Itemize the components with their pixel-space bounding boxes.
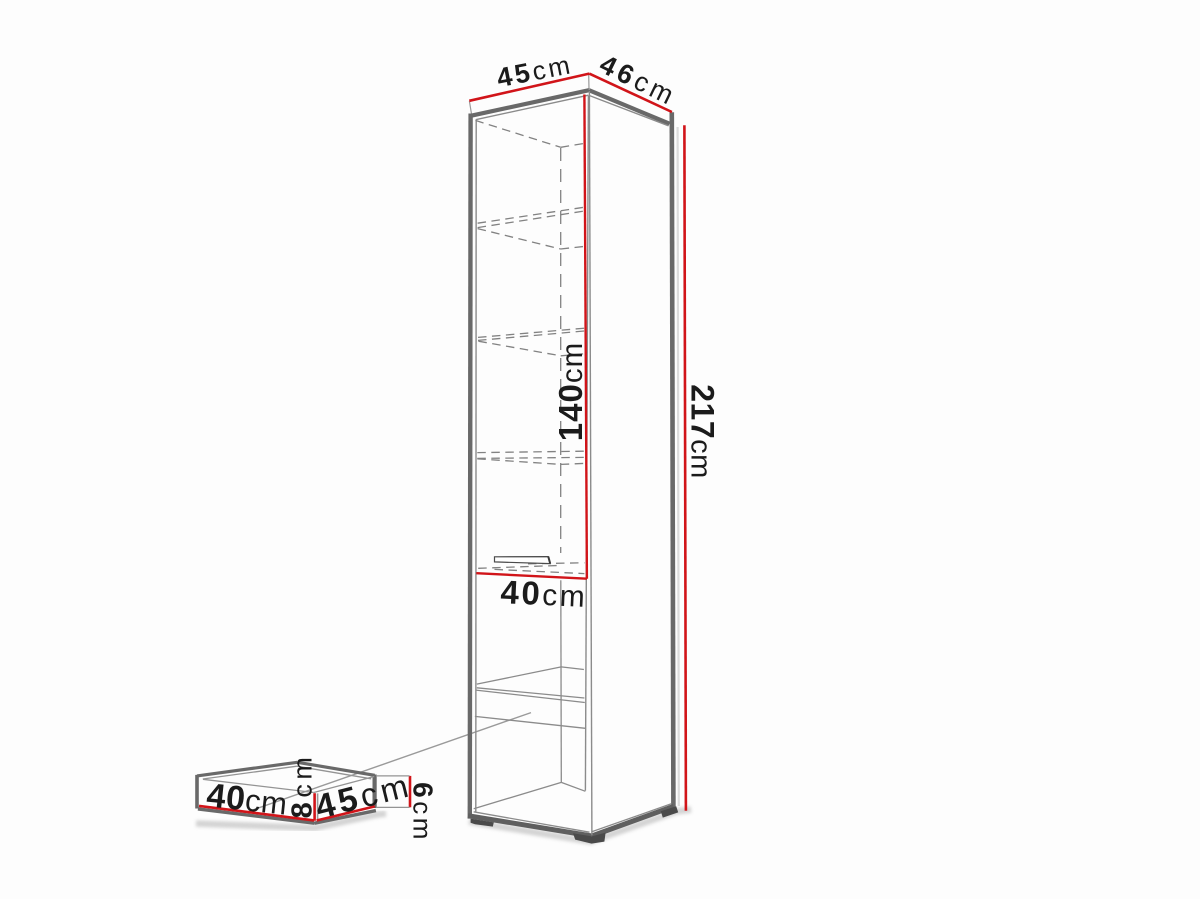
- svg-text:6cm: 6cm: [408, 782, 439, 843]
- svg-text:140cm: 140cm: [552, 342, 589, 441]
- svg-text:8cm: 8cm: [286, 753, 318, 819]
- svg-text:217cm: 217cm: [684, 384, 720, 479]
